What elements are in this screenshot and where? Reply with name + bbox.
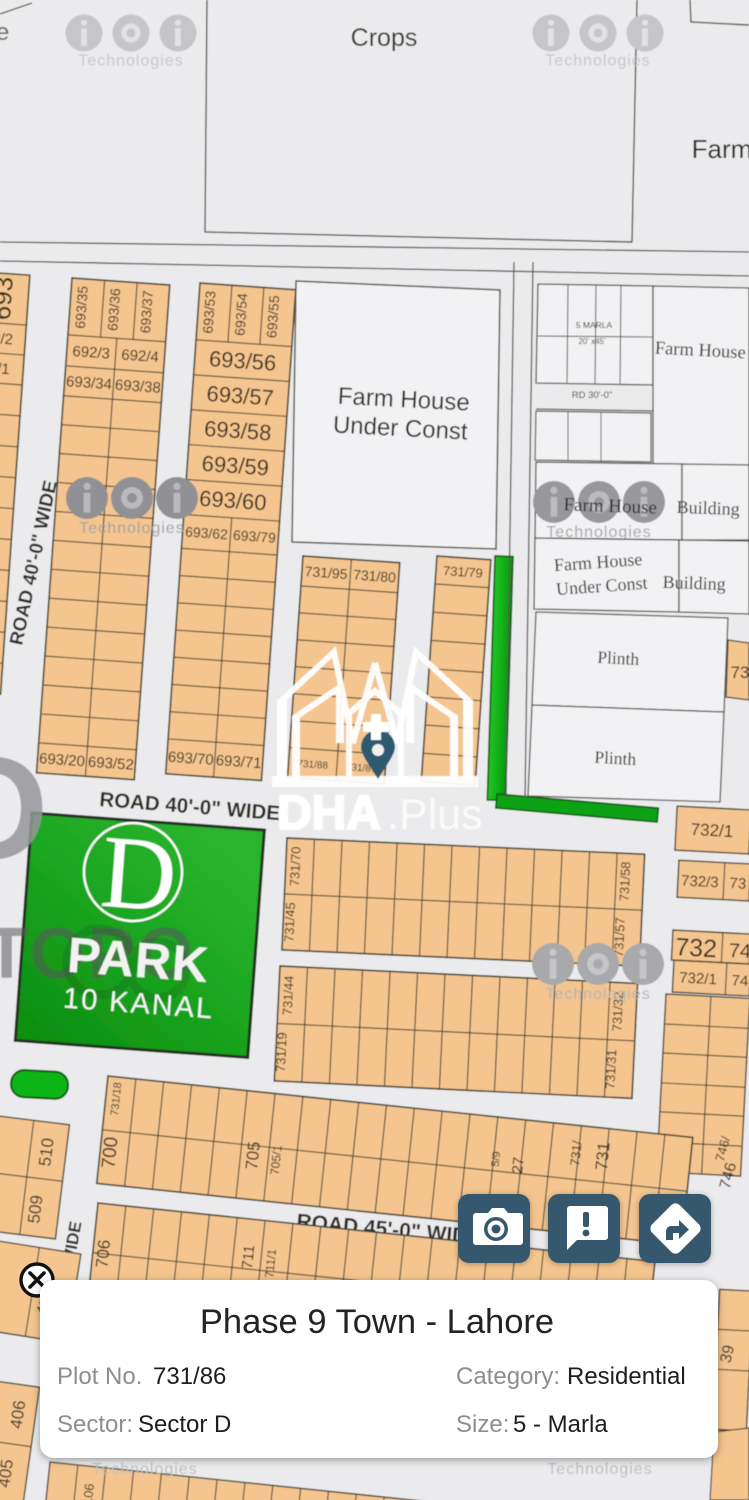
svg-text:Sector D: Sector D	[138, 1411, 231, 1438]
svg-text:5 MARLA: 5 MARLA	[576, 320, 613, 330]
svg-text:711: 711	[239, 1244, 258, 1270]
svg-text:Plinth: Plinth	[597, 647, 640, 669]
svg-text:74: 74	[731, 972, 749, 990]
svg-text:Technologies: Technologies	[545, 53, 650, 70]
svg-text:731/79: 731/79	[443, 563, 484, 581]
svg-text:2/2: 2/2	[0, 330, 14, 348]
svg-text:Category:: Category:	[456, 1363, 560, 1390]
svg-text:Technologies: Technologies	[79, 520, 184, 537]
svg-text:693/55: 693/55	[263, 295, 282, 339]
svg-text:Crops: Crops	[351, 24, 418, 52]
svg-text:731/70: 731/70	[287, 846, 304, 886]
svg-text:693/57: 693/57	[206, 381, 275, 411]
svg-text:106: 106	[80, 1483, 97, 1500]
svg-text:693/60: 693/60	[198, 486, 267, 516]
svg-text:693/35: 693/35	[72, 285, 91, 329]
svg-text:Building: Building	[662, 572, 726, 594]
svg-text:706: 706	[92, 1239, 114, 1269]
svg-text:5 - Marla: 5 - Marla	[513, 1411, 608, 1438]
svg-text:406: 406	[7, 1399, 30, 1430]
svg-text:e: e	[0, 19, 9, 46]
svg-text:693/58: 693/58	[203, 416, 272, 446]
svg-text:RD 30'-0": RD 30'-0"	[572, 390, 613, 401]
svg-text:73: 73	[729, 875, 747, 893]
svg-text:Technologies: Technologies	[547, 1461, 652, 1478]
svg-text:74: 74	[728, 940, 749, 963]
svg-text:731: 731	[592, 1141, 614, 1171]
svg-text:693/56: 693/56	[208, 346, 277, 376]
svg-text:705: 705	[242, 1140, 264, 1170]
svg-text:Technologies: Technologies	[92, 1461, 197, 1478]
svg-text:693: 693	[0, 276, 19, 321]
svg-text:20' x45': 20' x45'	[578, 337, 606, 346]
svg-text:D: D	[97, 814, 180, 934]
svg-text:693/36: 693/36	[104, 287, 123, 331]
svg-text:731/19: 731/19	[273, 1032, 290, 1072]
svg-text:Residential: Residential	[567, 1363, 686, 1390]
svg-text:692/3: 692/3	[72, 343, 111, 363]
svg-text:732/1: 732/1	[690, 820, 733, 841]
svg-text:27: 27	[509, 1156, 528, 1174]
svg-text:693/37: 693/37	[137, 290, 156, 334]
svg-text:731/95: 731/95	[304, 563, 348, 582]
svg-text:731/58: 731/58	[616, 861, 633, 901]
svg-text:693/71: 693/71	[215, 752, 262, 772]
svg-text:Plot No.: Plot No.	[57, 1363, 142, 1390]
svg-text:732/1: 732/1	[679, 969, 717, 988]
svg-text:Building: Building	[676, 497, 740, 519]
svg-text:Size:: Size:	[456, 1411, 509, 1438]
svg-text:693/54: 693/54	[231, 292, 250, 336]
svg-text:Farm: Farm	[692, 134, 749, 164]
svg-text:509: 509	[24, 1194, 46, 1224]
svg-text:3/1: 3/1	[0, 360, 10, 378]
svg-text:731/88: 731/88	[297, 759, 329, 772]
svg-text:Farm House: Farm House	[563, 494, 657, 518]
svg-text:5/9: 5/9	[490, 1151, 504, 1167]
svg-text:693/62: 693/62	[185, 523, 229, 542]
svg-text:.Plus: .Plus	[387, 791, 483, 839]
svg-text:700: 700	[98, 1136, 122, 1170]
svg-text:731/80: 731/80	[353, 566, 397, 585]
svg-text:Sector:: Sector:	[57, 1411, 133, 1438]
svg-text:Phase 9 Town - Lahore: Phase 9 Town - Lahore	[200, 1303, 554, 1341]
svg-text:692/4: 692/4	[121, 346, 160, 366]
svg-text:O: O	[0, 727, 48, 889]
svg-text:732: 732	[675, 933, 718, 963]
svg-text:693/53: 693/53	[200, 290, 219, 334]
svg-text:693/59: 693/59	[201, 451, 270, 481]
svg-text:731/44: 731/44	[280, 975, 297, 1015]
svg-text:DHA: DHA	[277, 787, 381, 840]
svg-text:693/52: 693/52	[87, 754, 134, 774]
svg-text:732/3: 732/3	[681, 872, 719, 891]
svg-text:693/34: 693/34	[66, 373, 113, 393]
svg-text:Plinth: Plinth	[594, 747, 637, 769]
svg-text:693/79: 693/79	[233, 527, 277, 546]
svg-text:73: 73	[731, 663, 749, 682]
svg-text:693/70: 693/70	[167, 749, 214, 769]
svg-text:Technologies: Technologies	[545, 986, 650, 1003]
svg-text:731/31: 731/31	[602, 1049, 619, 1089]
svg-text:510: 510	[35, 1137, 57, 1167]
svg-text:693/38: 693/38	[114, 377, 161, 397]
svg-text:731/45: 731/45	[281, 902, 298, 942]
svg-text:731/: 731/	[567, 1140, 585, 1167]
svg-text:731/86: 731/86	[153, 1363, 226, 1390]
svg-text:Technologies: Technologies	[78, 53, 183, 70]
